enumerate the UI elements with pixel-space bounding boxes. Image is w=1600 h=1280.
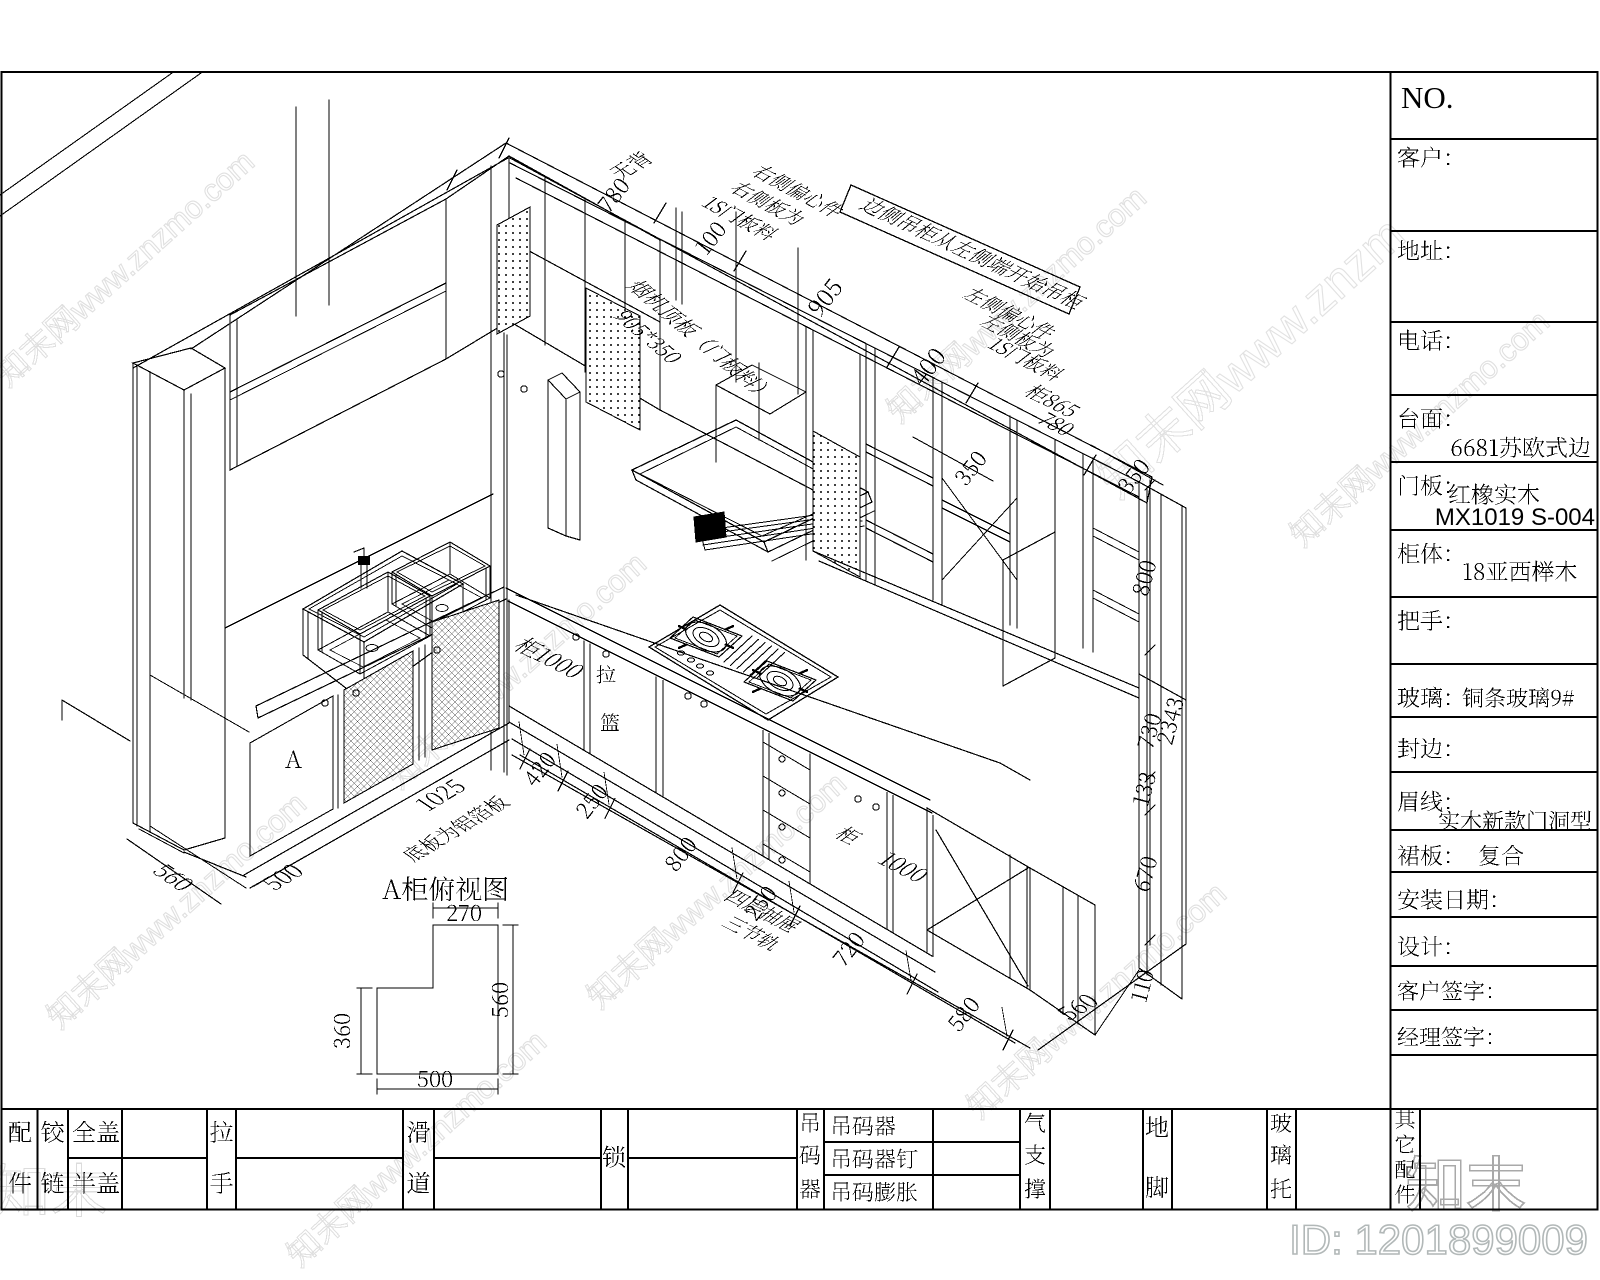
svg-text:NO.: NO.	[1401, 80, 1454, 115]
svg-text:ID: 1201899009: ID: 1201899009	[1289, 1216, 1588, 1263]
svg-text:MX1019 S-004: MX1019 S-004	[1435, 504, 1595, 531]
